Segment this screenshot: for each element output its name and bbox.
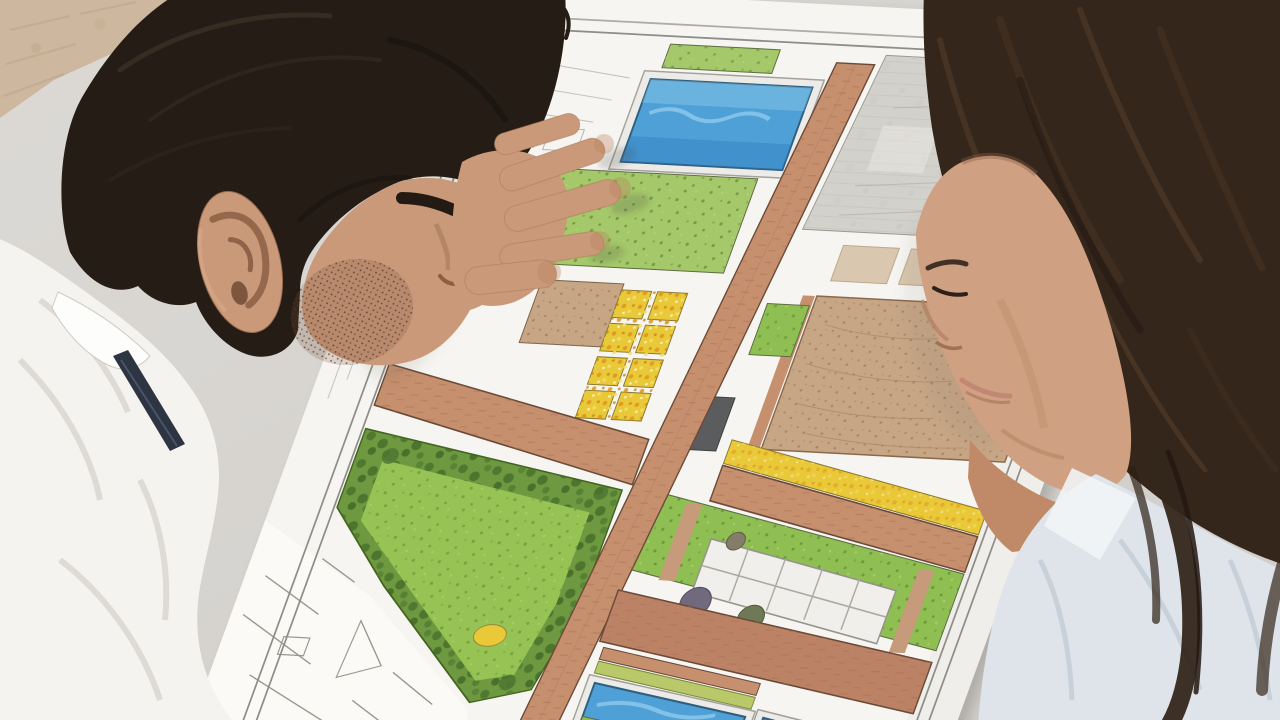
photo-scene: Top-down photo of a man (left) and a wom… [0,0,1280,720]
plan-lawn-strip-top [662,44,780,73]
scene-canvas: Top-down photo of a man (left) and a wom… [0,0,1280,720]
